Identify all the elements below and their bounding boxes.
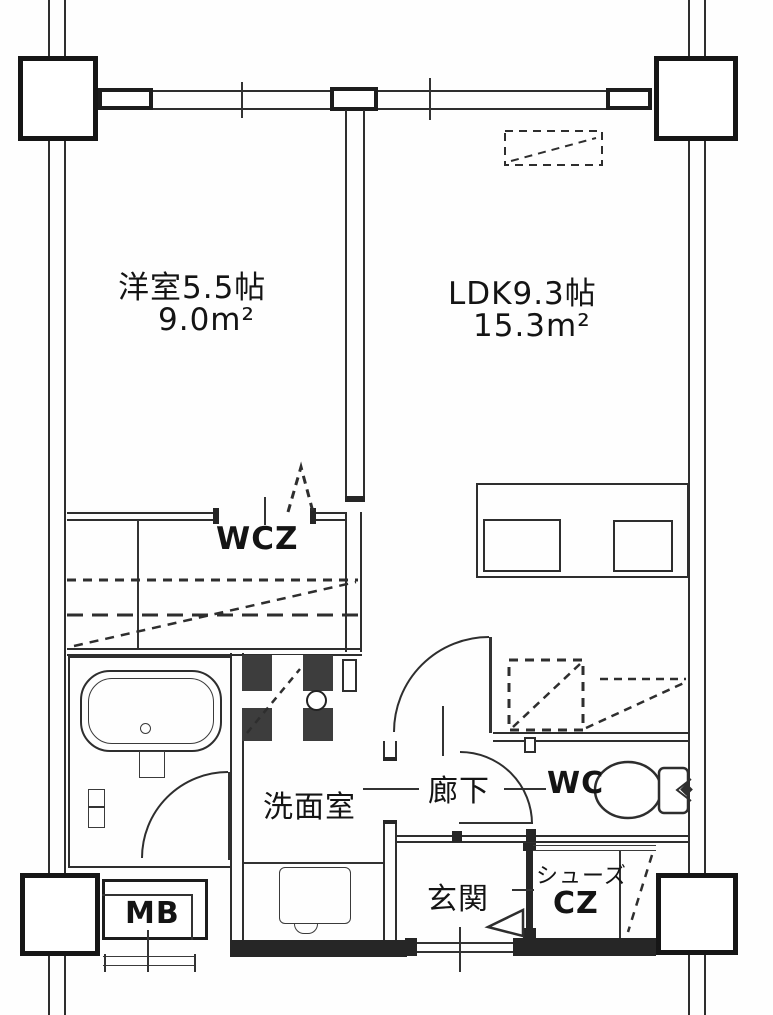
washroom-label: 洗面室 [263, 782, 356, 826]
entrance-label: 玄関 [427, 874, 489, 918]
plan-symbol-layer [0, 0, 773, 1015]
ldk-label: LDK9.3帖 [448, 268, 597, 313]
bathroom-door-arc [142, 772, 228, 858]
ldk-area: 15.3m² [473, 308, 591, 344]
dashed-hatch-diagonal [511, 138, 596, 161]
wcz-label: WCZ [216, 521, 298, 557]
toilet-bowl [595, 762, 661, 818]
western-room-label: 洋室5.5帖 [118, 262, 266, 307]
ldk-closet-diagonal [513, 664, 580, 727]
hallway-label: 廊下 [428, 766, 490, 810]
washstand-dashed-diagonal [247, 669, 300, 733]
meter-box-label: MB [125, 896, 180, 931]
western-room-area: 9.0m² [158, 302, 255, 338]
ldk-closet-diagonal [586, 682, 686, 728]
floor-plan: 洋室5.5帖 9.0m² LDK9.3帖 15.3m² WCZ 洗面室 廊下 W… [0, 0, 773, 1015]
shoes-closet-label-line2: CZ [553, 886, 599, 921]
folding-door-symbol [288, 467, 313, 512]
dashed-hatch-box [505, 131, 602, 165]
entrance-door-symbol [488, 910, 523, 936]
shoes-closet-dashed-diagonal [628, 855, 652, 932]
closet-diagonal-dashed-line [74, 582, 356, 646]
ldk-door-arc [394, 637, 489, 732]
wc-label: WC [547, 766, 604, 801]
